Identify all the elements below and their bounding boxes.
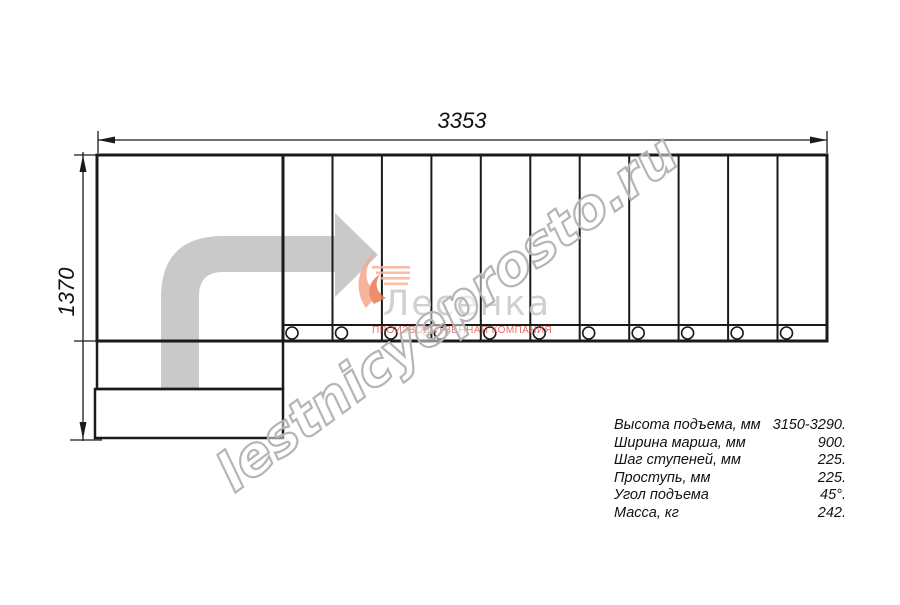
spec-value: 225.: [818, 452, 846, 470]
spec-label: Ширина марша, мм: [614, 435, 746, 453]
spec-row: Ширина марша, мм 900.: [614, 435, 846, 453]
mount-hole: [336, 327, 348, 339]
spec-row: Шаг ступеней, мм 225.: [614, 452, 846, 470]
mount-hole: [632, 327, 644, 339]
dimension-length: [98, 131, 827, 153]
spec-value: 225.: [818, 470, 846, 488]
spec-row: Проступь, мм 225.: [614, 470, 846, 488]
spec-value: 3150-3290.: [773, 417, 846, 435]
mount-hole: [583, 327, 595, 339]
width-dimension-label: 1370: [54, 268, 80, 317]
spec-label: Высота подъема, мм: [614, 417, 761, 435]
spec-label: Угол подъема: [614, 487, 709, 505]
mount-hole: [286, 327, 298, 339]
spec-label: Масса, кг: [614, 505, 679, 523]
spec-row: Масса, кг 242.: [614, 505, 846, 523]
mount-hole: [731, 327, 743, 339]
spec-table: Высота подъема, мм 3150-3290. Ширина мар…: [614, 417, 846, 522]
spec-row: Угол подъема 45°.: [614, 487, 846, 505]
spec-label: Проступь, мм: [614, 470, 710, 488]
spec-value: 45°.: [820, 487, 846, 505]
mount-hole: [781, 327, 793, 339]
mount-hole: [682, 327, 694, 339]
spec-label: Шаг ступеней, мм: [614, 452, 741, 470]
length-dimension-label: 3353: [438, 108, 487, 134]
spec-value: 900.: [818, 435, 846, 453]
stair-plan-drawing: 3353 1370 Лесенка производственная компа…: [0, 0, 900, 600]
spec-value: 242.: [818, 505, 846, 523]
spec-row: Высота подъема, мм 3150-3290.: [614, 417, 846, 435]
